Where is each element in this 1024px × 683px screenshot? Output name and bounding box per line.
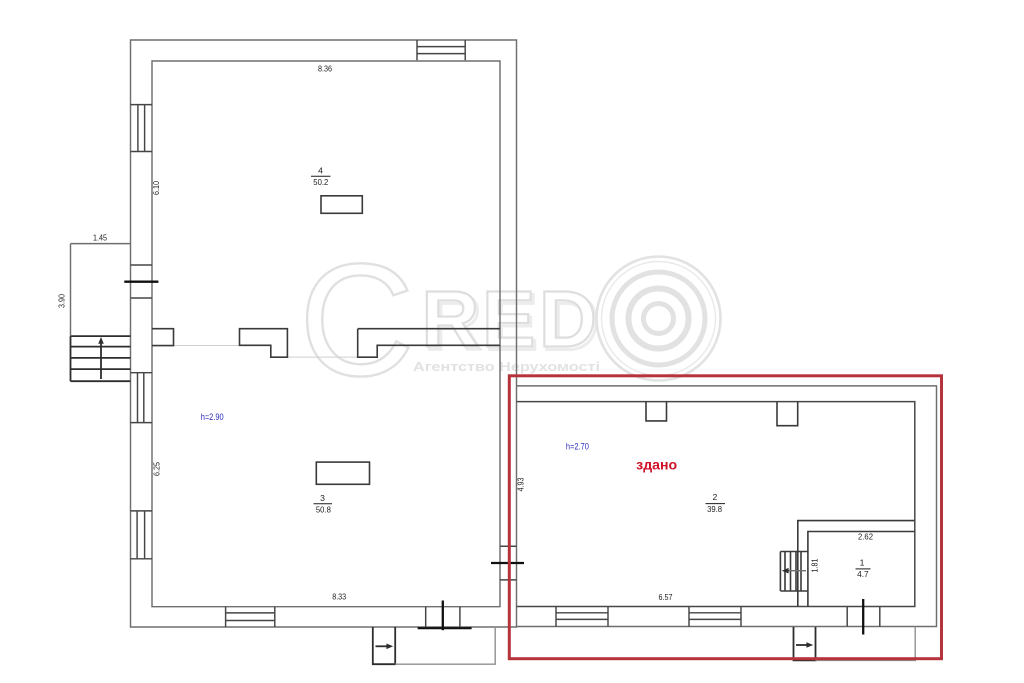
svg-text:3: 3 <box>320 493 325 503</box>
svg-text:h=2.90: h=2.90 <box>201 412 224 422</box>
svg-text:R: R <box>422 275 480 364</box>
svg-text:4.7: 4.7 <box>857 569 869 579</box>
svg-text:2.62: 2.62 <box>858 532 873 542</box>
svg-text:1.45: 1.45 <box>93 232 107 242</box>
svg-text:50.8: 50.8 <box>316 504 331 514</box>
svg-text:4.93: 4.93 <box>516 477 526 491</box>
svg-text:6.25: 6.25 <box>151 462 161 476</box>
svg-text:Агентство Нерухомості: Агентство Нерухомості <box>413 360 600 374</box>
svg-text:50.2: 50.2 <box>313 177 328 187</box>
svg-text:C: C <box>299 230 415 409</box>
svg-text:h=2.70: h=2.70 <box>566 441 589 451</box>
svg-text:E: E <box>482 275 535 364</box>
svg-text:39.8: 39.8 <box>707 504 722 514</box>
svg-text:1: 1 <box>860 557 865 567</box>
svg-text:здано: здано <box>636 457 677 472</box>
svg-text:6.10: 6.10 <box>151 181 161 195</box>
svg-text:2: 2 <box>713 492 718 502</box>
svg-text:D: D <box>539 275 597 364</box>
svg-text:8.36: 8.36 <box>318 64 332 74</box>
svg-text:8.33: 8.33 <box>332 592 346 602</box>
svg-text:4: 4 <box>318 165 323 175</box>
svg-text:6.57: 6.57 <box>659 592 673 602</box>
svg-text:1.81: 1.81 <box>809 558 819 572</box>
svg-text:3.90: 3.90 <box>57 294 67 308</box>
